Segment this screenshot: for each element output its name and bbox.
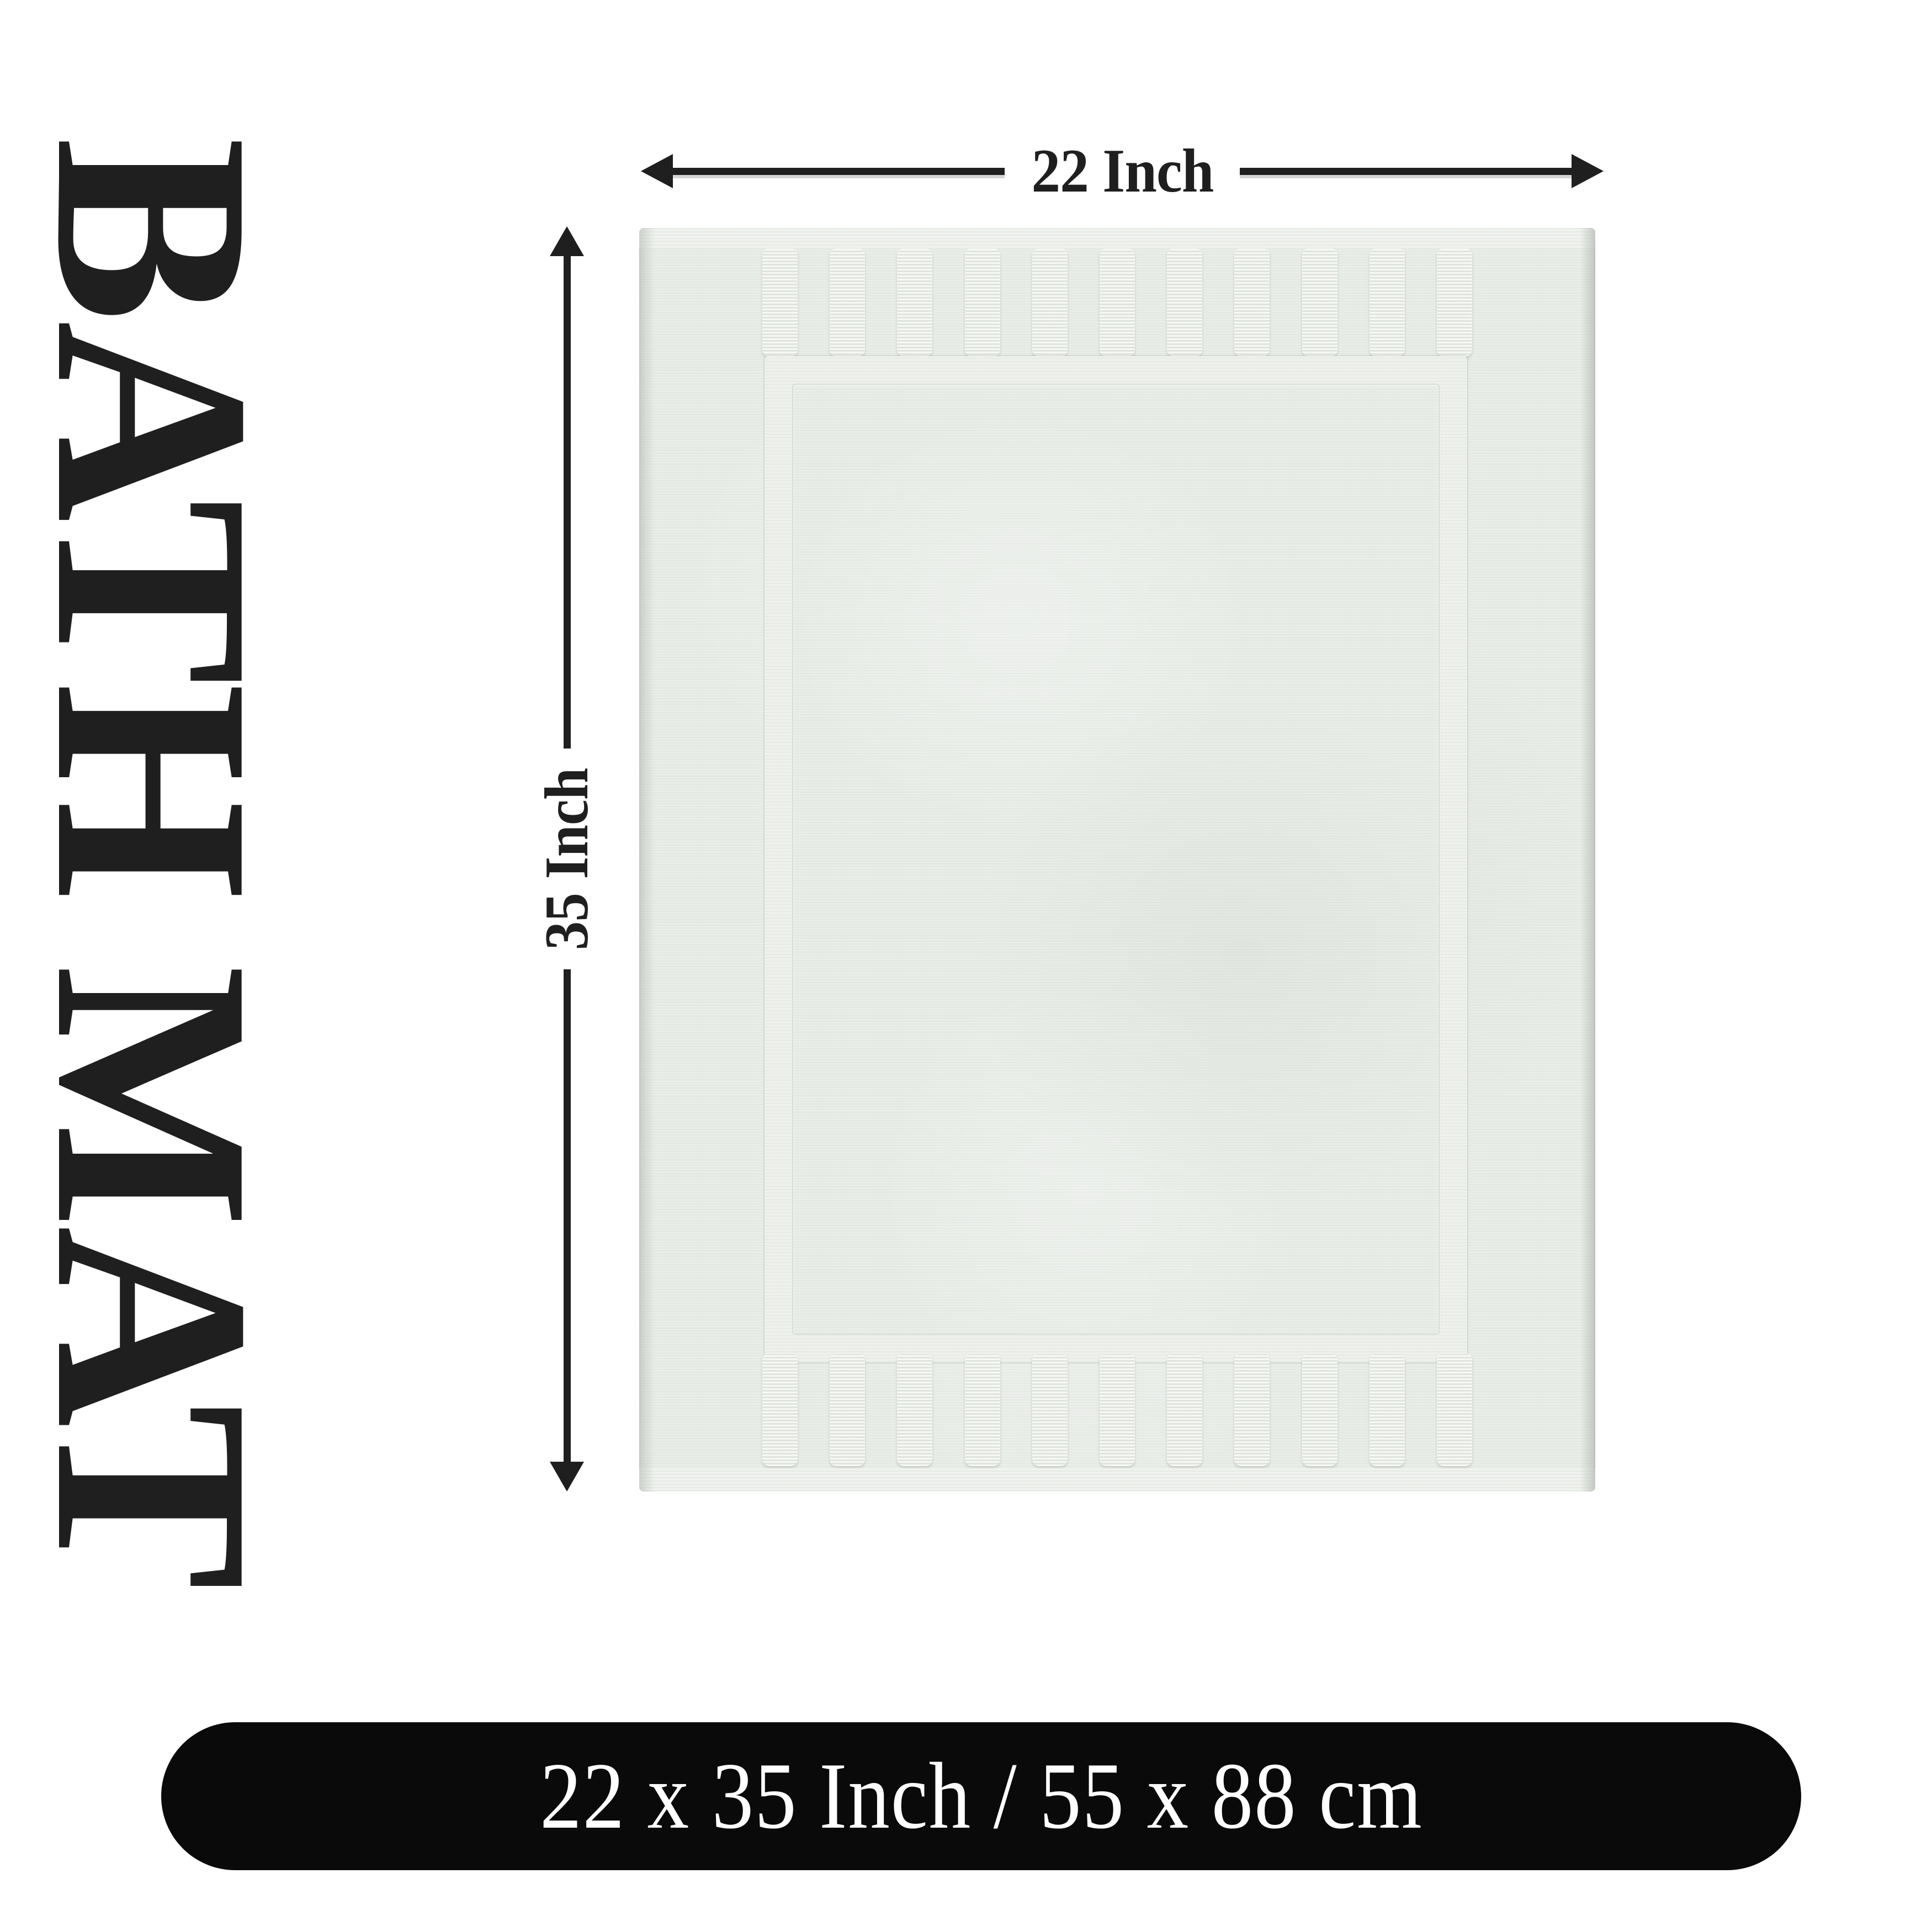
mat-tab [1370,248,1405,357]
dimension-line [673,168,1005,175]
mat-tab [1032,1353,1068,1466]
width-dimension: 22 Inch [641,138,1604,204]
mat-tab [1302,1353,1337,1466]
arrowhead-up-icon [550,226,584,256]
bath-mat-photo [639,228,1595,1492]
mat-tab [1234,248,1270,357]
product-title: BATH MAT [13,137,292,1588]
dimension-line [1240,168,1572,175]
size-banner: 22 x 35 Inch / 55 x 88 cm [161,1722,1801,1870]
mat-tabs-top [762,248,1472,357]
mat-tab [1032,248,1068,357]
height-label-box: 35 Inch [535,749,599,969]
mat-tab [762,248,798,357]
height-dimension: 35 Inch [535,226,599,1492]
mat-tab [1370,1353,1405,1466]
mat-tab [1100,1353,1135,1466]
arrowhead-left-icon [641,154,673,188]
mat-tab [897,1353,932,1466]
mat-tab [1302,248,1337,357]
mat-edge-left [639,228,655,1492]
product-infographic: BATH MAT 22 Inch 35 Inch 22 x 35 Inch / … [0,0,1932,1932]
mat-tab [1100,248,1135,357]
mat-tab [897,248,932,357]
mat-border-frame [765,356,1467,1362]
mat-tab [1234,1353,1270,1466]
mat-hem-top [639,228,1595,249]
dimension-line [564,256,571,749]
mat-tab [965,1353,1000,1466]
mat-tabs-bottom [762,1353,1472,1466]
mat-tab [1437,248,1472,357]
mat-tab [830,1353,865,1466]
dimension-line [564,969,571,1462]
size-banner-label: 22 x 35 Inch / 55 x 88 cm [540,1749,1423,1844]
arrowhead-right-icon [1572,154,1604,188]
mat-center-panel [793,385,1439,1334]
mat-tab [762,1353,798,1466]
width-label: 22 Inch [1031,136,1213,207]
mat-hem-bottom [639,1468,1595,1492]
mat-tab [830,248,865,357]
mat-tab [965,248,1000,357]
mat-edge-right [1580,228,1595,1492]
mat-tab [1167,248,1202,357]
height-label: 35 Inch [532,768,603,950]
mat-tab [1437,1353,1472,1466]
mat-tab [1167,1353,1202,1466]
arrowhead-down-icon [550,1462,584,1492]
